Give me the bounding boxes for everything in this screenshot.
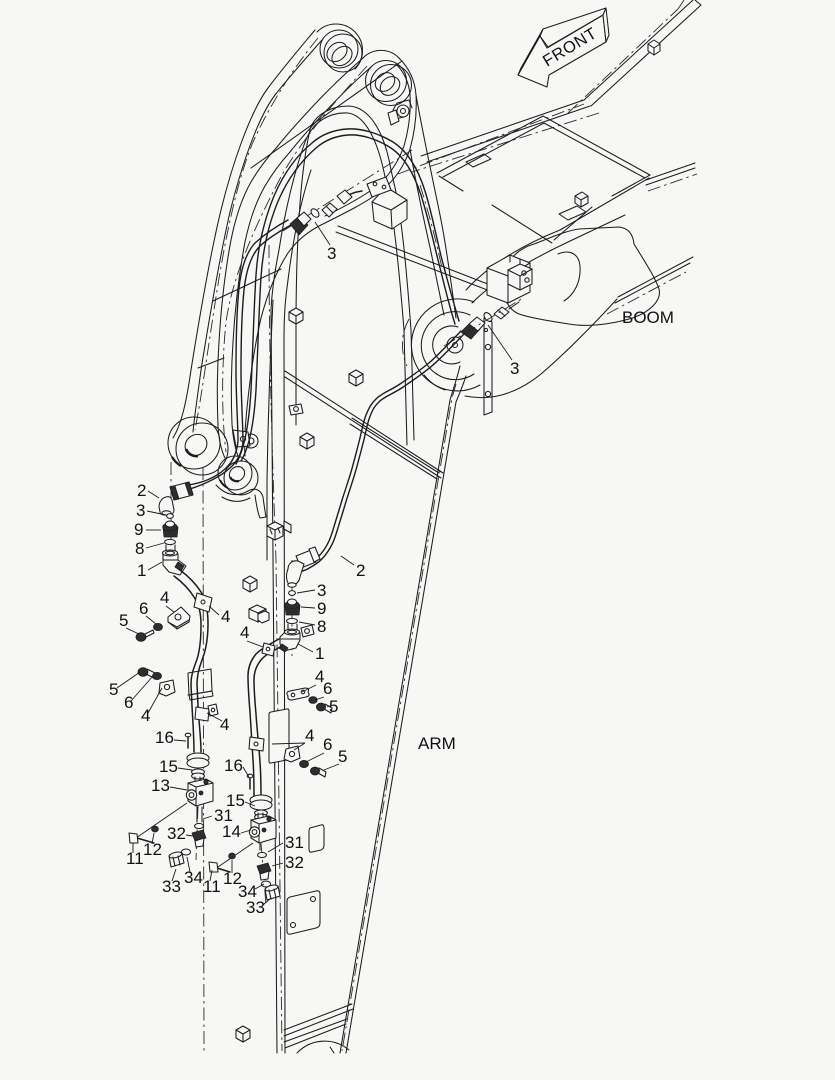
svg-text:15: 15 <box>159 757 178 776</box>
svg-text:1: 1 <box>137 561 146 580</box>
svg-text:6: 6 <box>124 693 133 712</box>
svg-text:4: 4 <box>240 623 249 642</box>
svg-text:34: 34 <box>184 868 203 887</box>
svg-text:6: 6 <box>323 679 332 698</box>
svg-text:9: 9 <box>317 599 326 618</box>
svg-text:3: 3 <box>136 501 145 520</box>
svg-text:8: 8 <box>317 617 326 636</box>
svg-text:33: 33 <box>246 898 265 917</box>
svg-text:2: 2 <box>137 481 146 500</box>
svg-text:11: 11 <box>126 849 144 868</box>
svg-text:6: 6 <box>139 599 148 618</box>
svg-text:13: 13 <box>151 776 170 795</box>
svg-text:1: 1 <box>315 644 324 663</box>
svg-text:5: 5 <box>109 680 118 699</box>
svg-text:ARM: ARM <box>418 734 456 753</box>
svg-text:5: 5 <box>329 697 338 716</box>
svg-text:4: 4 <box>305 726 314 745</box>
svg-text:3: 3 <box>317 581 326 600</box>
svg-text:15: 15 <box>226 791 245 810</box>
svg-text:4: 4 <box>220 715 229 734</box>
svg-text:BOOM: BOOM <box>622 308 674 327</box>
svg-text:4: 4 <box>221 607 230 626</box>
svg-text:16: 16 <box>155 728 174 747</box>
svg-text:3: 3 <box>327 244 336 263</box>
svg-text:9: 9 <box>134 520 143 539</box>
svg-text:32: 32 <box>167 824 186 843</box>
svg-text:3: 3 <box>510 359 519 378</box>
svg-text:8: 8 <box>135 539 144 558</box>
svg-text:14: 14 <box>222 822 241 841</box>
svg-text:6: 6 <box>323 735 332 754</box>
svg-text:31: 31 <box>285 833 304 852</box>
svg-text:2: 2 <box>356 561 365 580</box>
svg-text:5: 5 <box>119 611 128 630</box>
svg-text:4: 4 <box>160 588 169 607</box>
svg-text:4: 4 <box>141 706 150 725</box>
svg-text:11: 11 <box>203 877 221 896</box>
svg-text:5: 5 <box>338 747 347 766</box>
svg-text:33: 33 <box>162 877 181 896</box>
svg-text:32: 32 <box>285 853 304 872</box>
svg-text:16: 16 <box>224 756 243 775</box>
